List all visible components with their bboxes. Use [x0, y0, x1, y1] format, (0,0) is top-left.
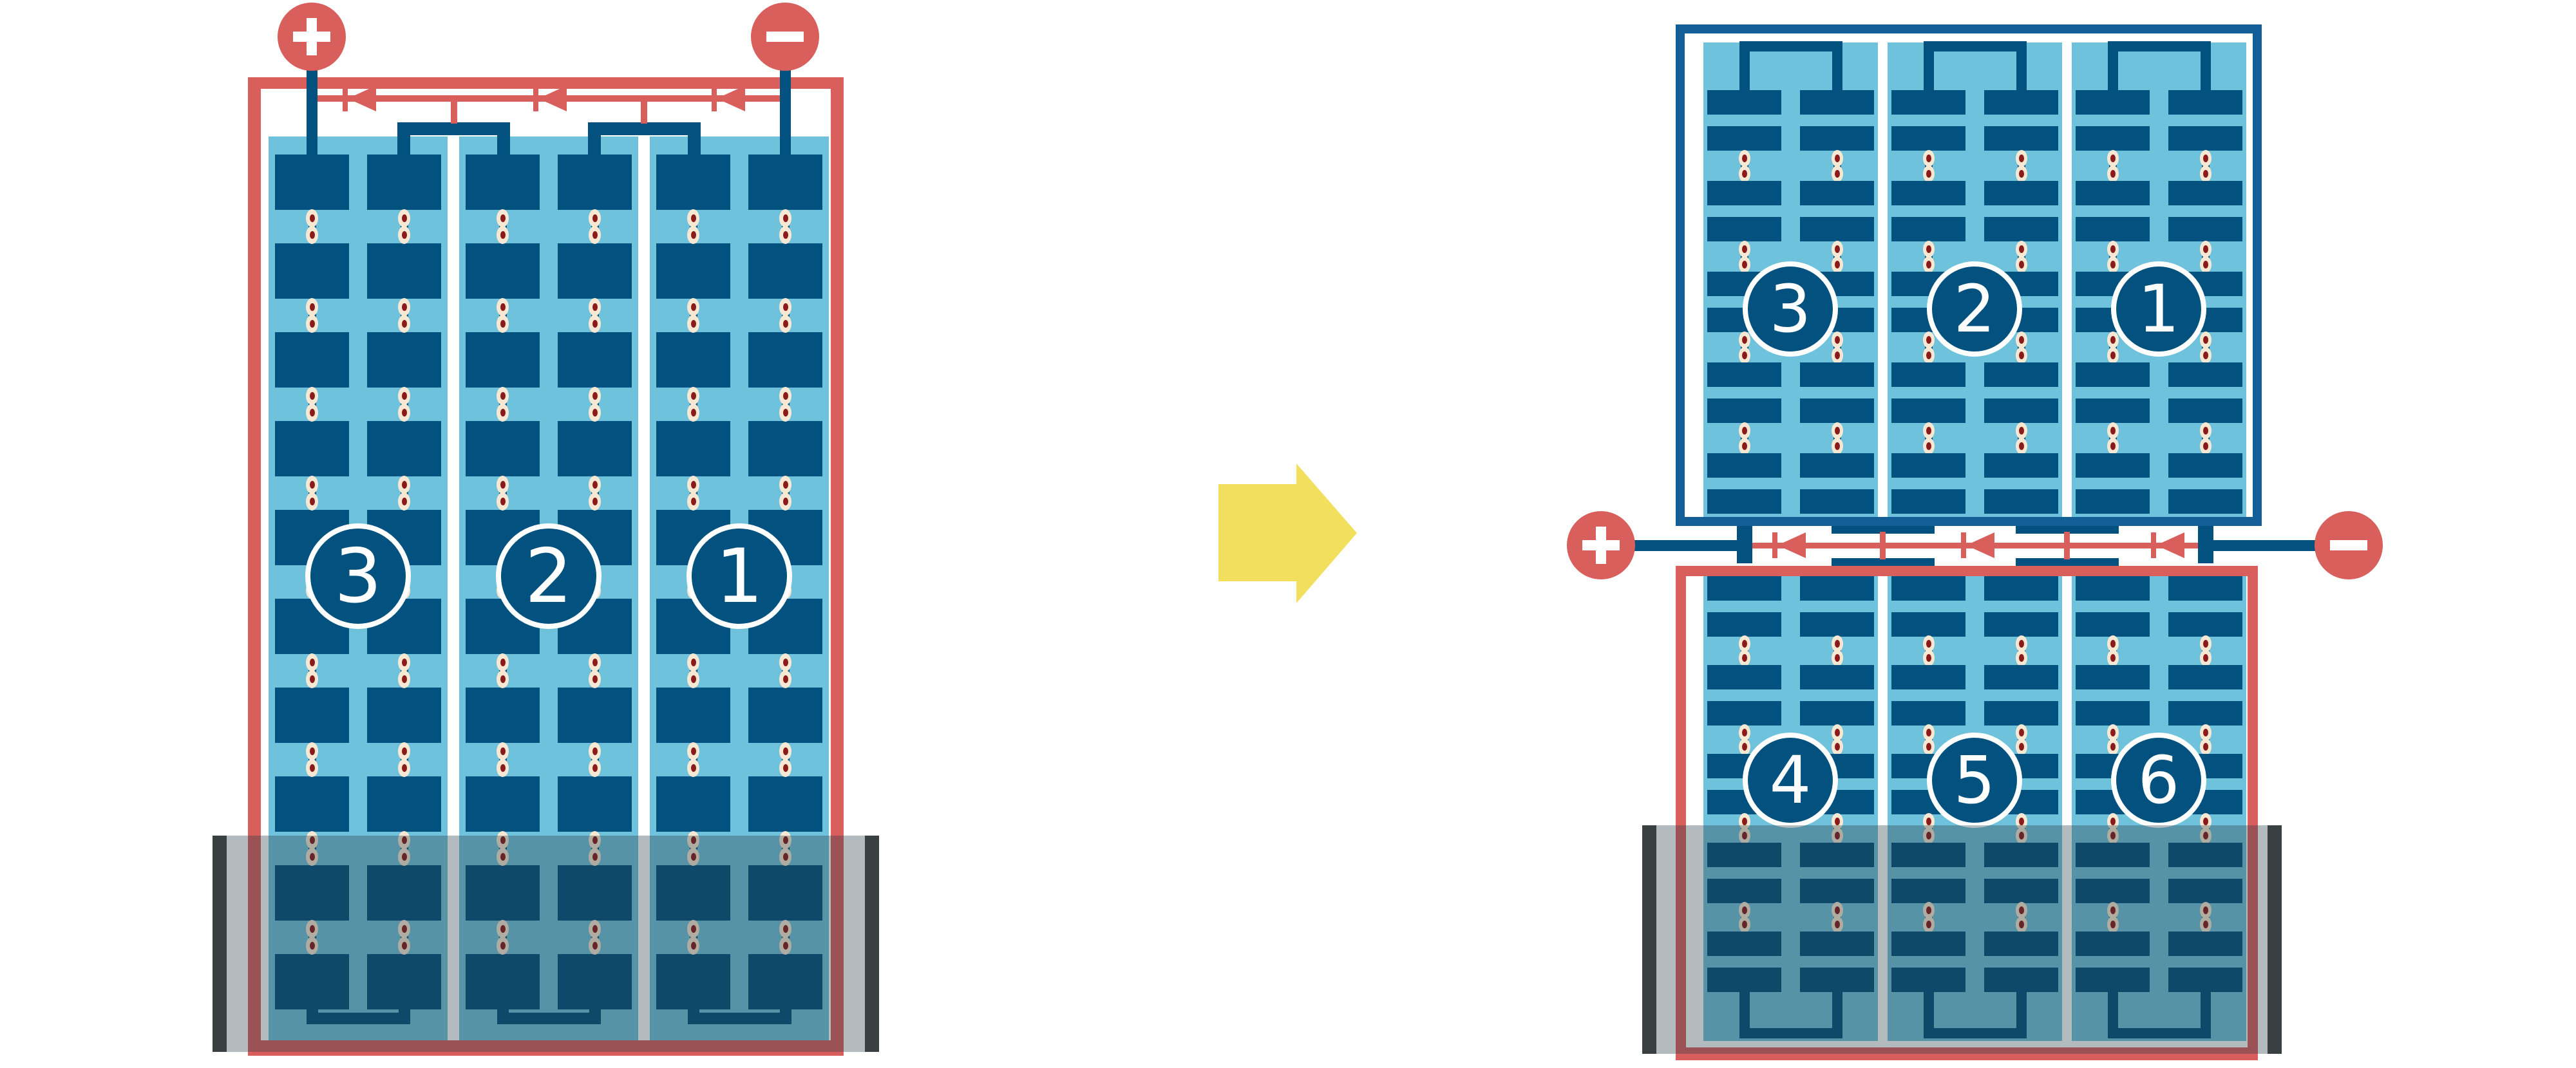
shade-edge-cap — [1642, 825, 1656, 1054]
arrow-head — [1296, 464, 1357, 603]
shade-overlay — [213, 836, 879, 1052]
arrow-body — [1218, 484, 1296, 581]
shade-edge-cap — [865, 836, 879, 1052]
solar-module-wiring-diagram: 3 2 1 3 2 1 4 5 6 — [0, 0, 2576, 1068]
shade-edge-cap — [2268, 825, 2282, 1054]
transform-arrow-icon — [1218, 464, 1357, 603]
shade-overlay — [1642, 825, 2282, 1054]
shade-edge-cap — [213, 836, 227, 1052]
